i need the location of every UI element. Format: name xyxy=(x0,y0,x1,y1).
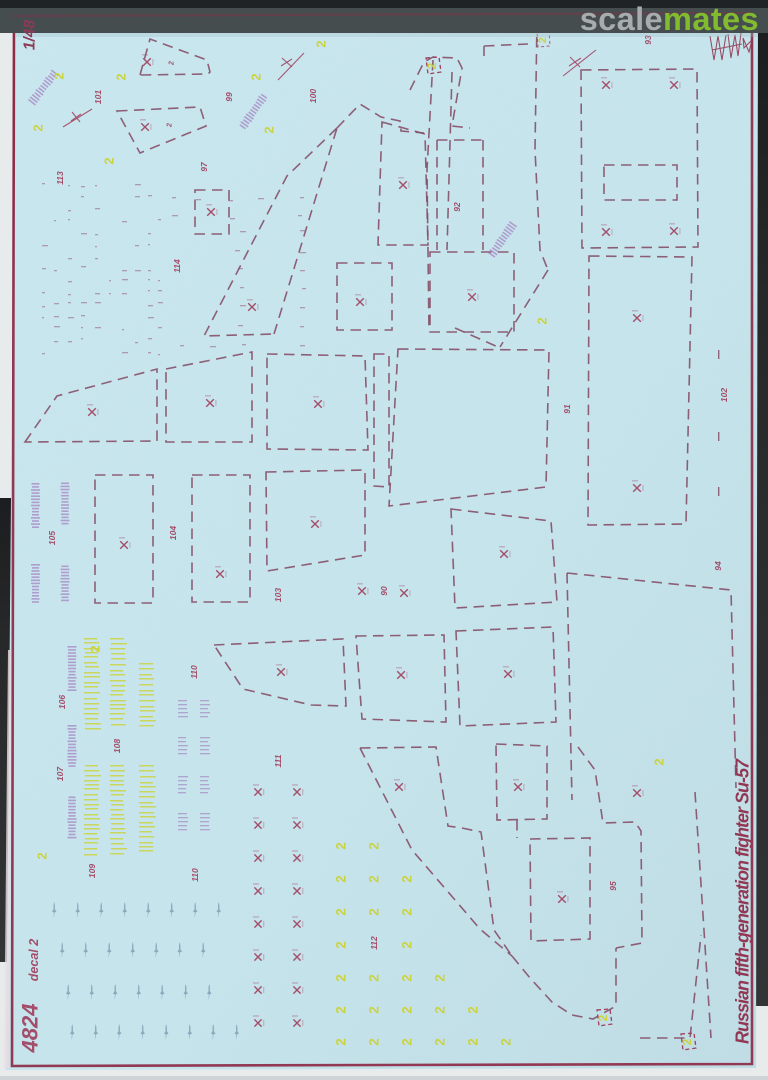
svg-text:1/48: 1/48 xyxy=(22,20,39,51)
svg-text:scalemates: scalemates xyxy=(580,1,759,37)
